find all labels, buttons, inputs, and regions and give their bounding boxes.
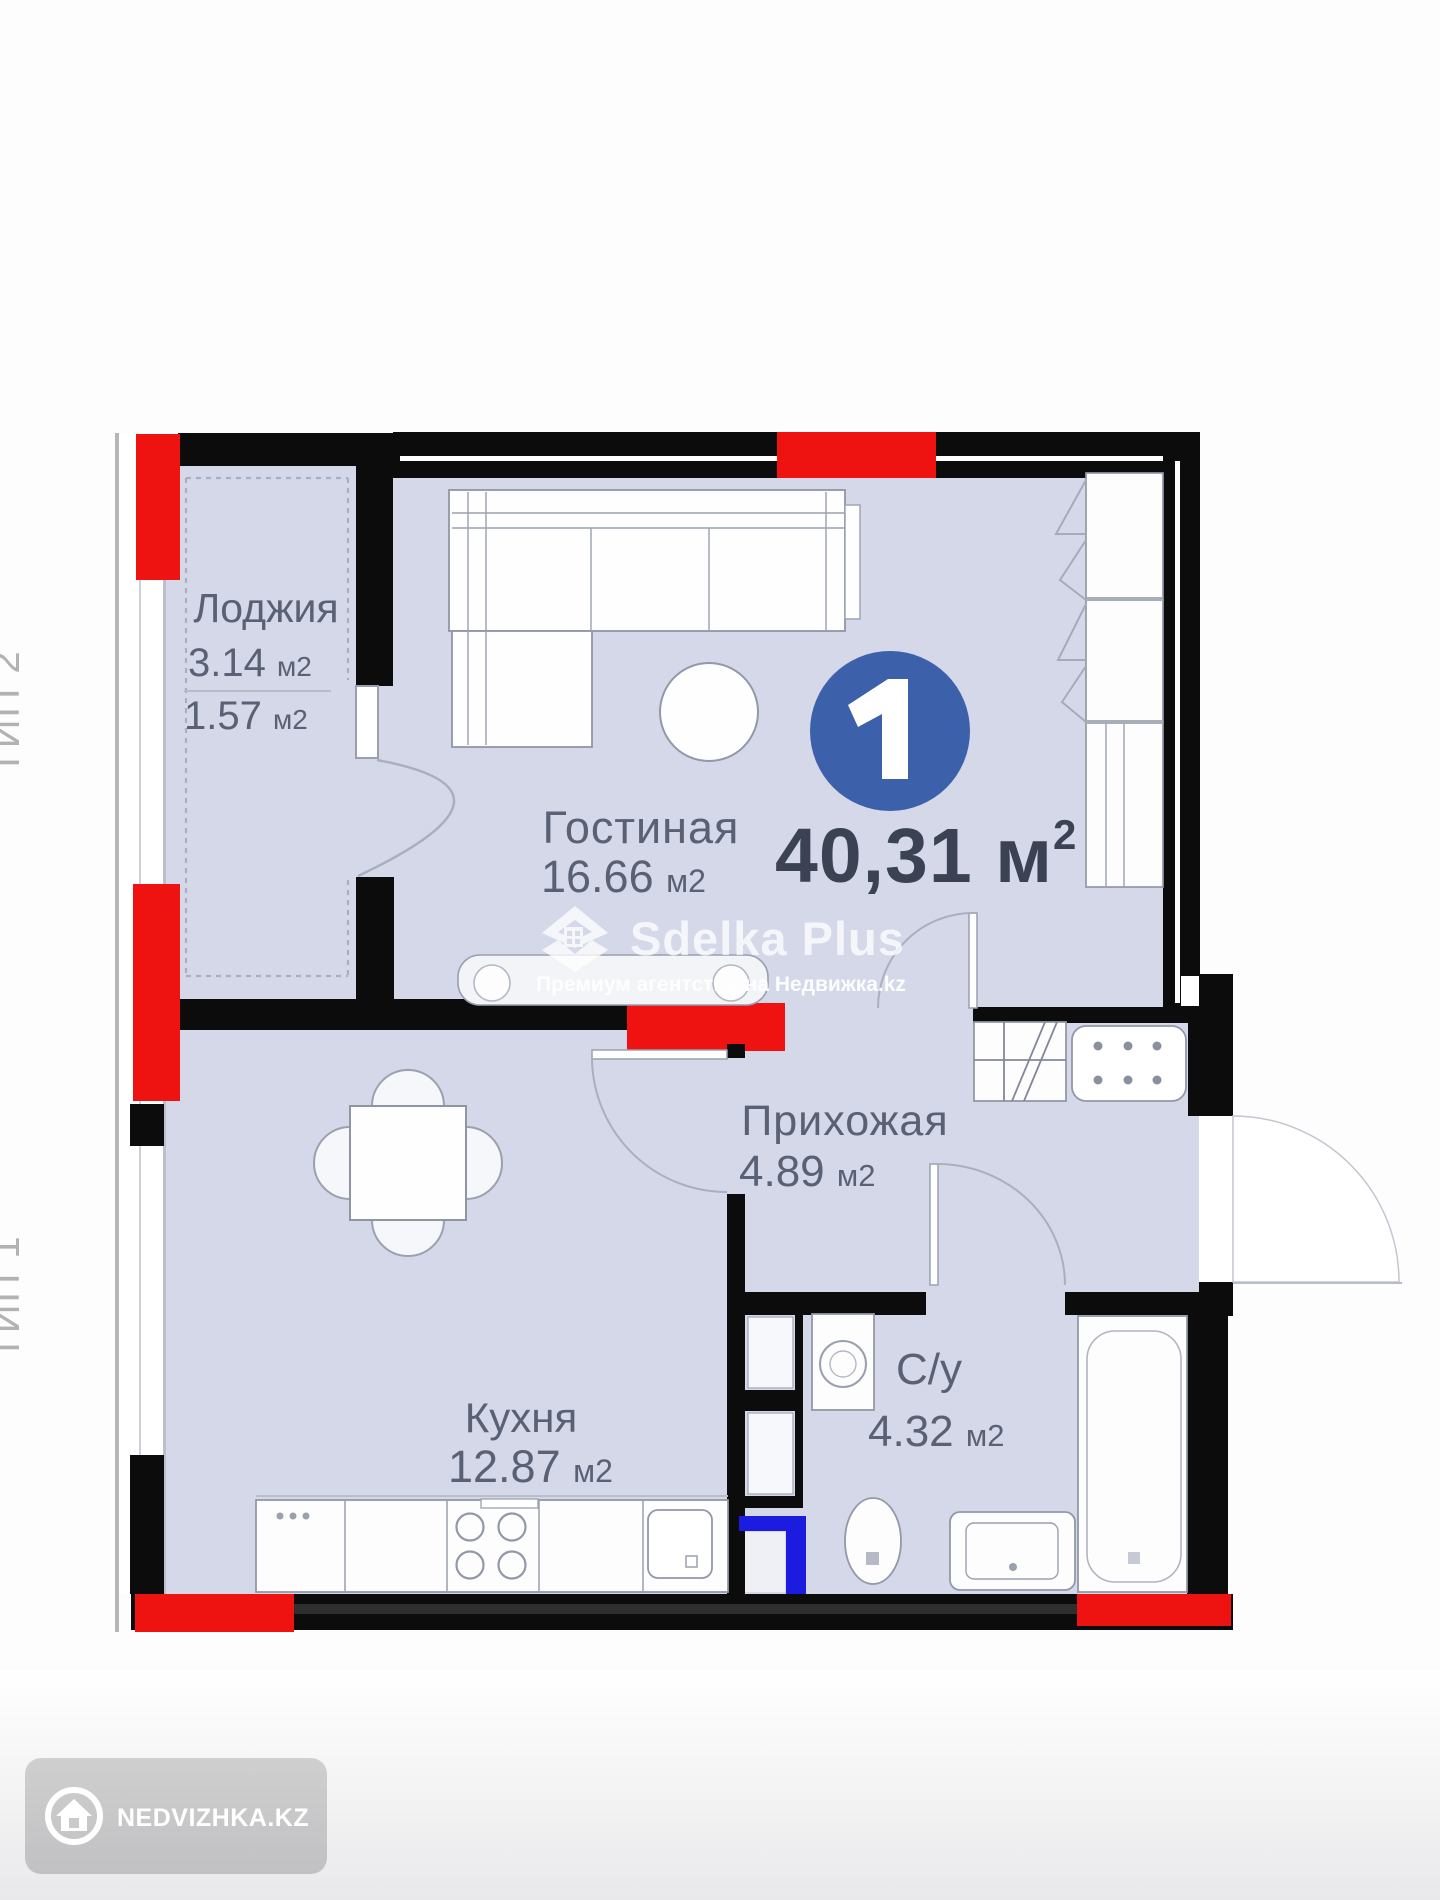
svg-text:Sdelka Plus: Sdelka Plus [630,912,905,965]
svg-text:Гостиная: Гостиная [543,802,740,853]
svg-text:ТИП 2: ТИП 2 [0,649,28,774]
svg-text:Премиум агентство на Недвижка.: Премиум агентство на Недвижка.kz [536,973,906,996]
svg-text:Кухня: Кухня [465,1394,577,1441]
svg-text:Прихожая: Прихожая [741,1097,948,1145]
svg-text:NEDVIZHKA.KZ: NEDVIZHKA.KZ [117,1804,309,1832]
svg-text:40,31 м2: 40,31 м2 [775,811,1077,899]
svg-text:С/у: С/у [896,1345,962,1394]
svg-text:Лоджия: Лоджия [193,585,338,631]
svg-text:ТИП 1: ТИП 1 [0,1234,28,1359]
